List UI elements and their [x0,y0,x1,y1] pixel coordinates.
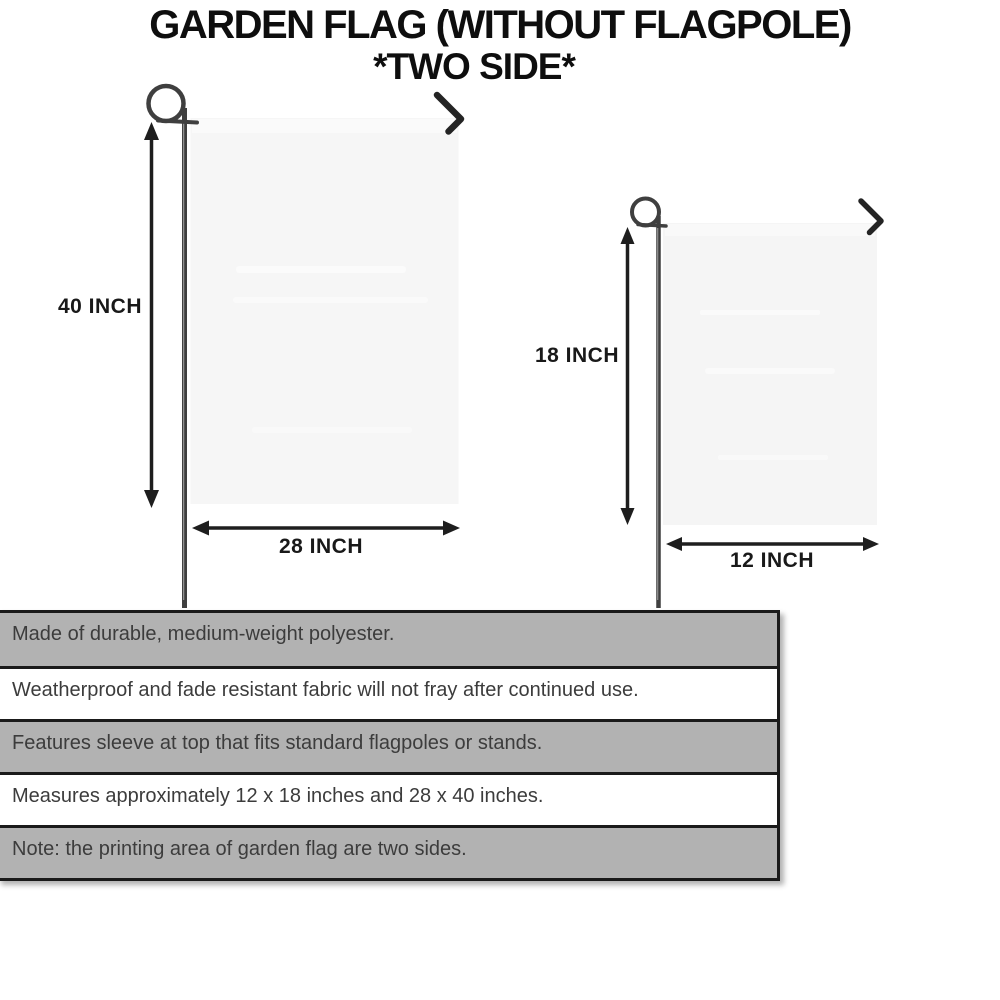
fabric-fold [700,310,820,315]
features-table: Made of durable, medium-weight polyester… [0,610,780,881]
feature-row: Note: the printing area of garden flag a… [0,825,777,878]
fabric-fold [718,455,828,460]
height-label-large: 40 INCH [35,295,165,319]
feature-text: Features sleeve at top that fits standar… [12,732,542,754]
width-label-small: 12 INCH [697,549,847,573]
fabric-fold [236,266,406,273]
flag-diagram-large [144,86,461,608]
width-label-large: 28 INCH [246,535,396,559]
fabric-fold [665,224,875,236]
fabric-fold [705,368,835,374]
fabric-fold [233,297,428,303]
flagpole-loop-icon-large [149,86,184,121]
fabric-fold [252,427,412,433]
height-label-small: 18 INCH [502,344,652,368]
flagpole-loop-icon-small [632,199,659,226]
feature-text: Measures approximately 12 x 18 inches an… [12,785,543,807]
feature-text: Made of durable, medium-weight polyester… [12,623,394,645]
flag-diagram-small [621,199,882,609]
fabric-fold [192,119,457,133]
feature-text: Note: the printing area of garden flag a… [12,838,467,860]
feature-row: Measures approximately 12 x 18 inches an… [0,772,777,825]
flag-canvas-large [191,118,459,504]
feature-text: Weatherproof and fade resistant fabric w… [12,679,639,701]
width-arrow-large [192,521,460,536]
feature-row: Made of durable, medium-weight polyester… [0,613,777,666]
height-arrow-small [621,227,635,525]
infographic-page: GARDEN FLAG (WITHOUT FLAGPOLE) *TWO SIDE… [0,0,1000,1000]
feature-row: Features sleeve at top that fits standar… [0,719,777,772]
feature-row: Weatherproof and fade resistant fabric w… [0,666,777,719]
